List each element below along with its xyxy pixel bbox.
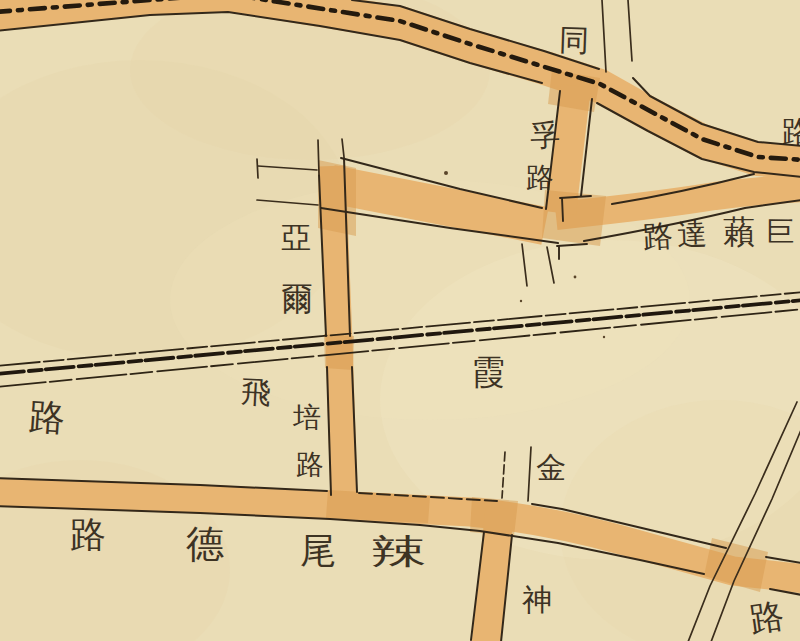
label-joffre-char-1: 霞 [471, 352, 505, 392]
label-lafayette-char-1: 路 [70, 514, 106, 555]
label-roi-albert-char-2: 爾 [281, 280, 313, 318]
label-tongfu-road-char-2: 孚 [529, 117, 560, 153]
label-pere-robert-char-1: 金 [536, 450, 566, 485]
label-lafayette-char-2: 德 [186, 522, 224, 566]
label-route-ratard-char-4: 巨 [766, 215, 794, 248]
label-roi-albert-char-4: 路 [296, 448, 324, 481]
label-joffre-char-2: 飛 [240, 374, 272, 411]
label-lafayette-char-4: 辣 [371, 531, 427, 571]
label-lafayette-char-3: 尾 [300, 530, 336, 571]
label-tongfu-road-char-1: 同 [558, 22, 589, 58]
label-tongfu-road-char-3: 路 [526, 161, 554, 194]
label-route-ratard-char-3: 藾 [723, 213, 755, 251]
label-roi-albert-char-3: 培 [292, 401, 321, 434]
label-route-ratard-char-1: 路 [642, 218, 674, 255]
label-joffre-char-3: 路 [28, 395, 67, 438]
label-southeast-road-char: 路 [747, 595, 786, 639]
label-pere-robert-char-2: 神 [522, 582, 552, 617]
label-roi-albert-char-1: 亞 [281, 220, 311, 255]
label-route-ratard-char-2: 達 [676, 216, 707, 252]
label-northeast-road-char: 路 [782, 114, 800, 149]
historical-map-canvas: 同 孚 路 路 達 藾 巨 亞 爾 培 路 霞 飛 路 路 德 尾 辣 金 神 … [0, 0, 800, 641]
